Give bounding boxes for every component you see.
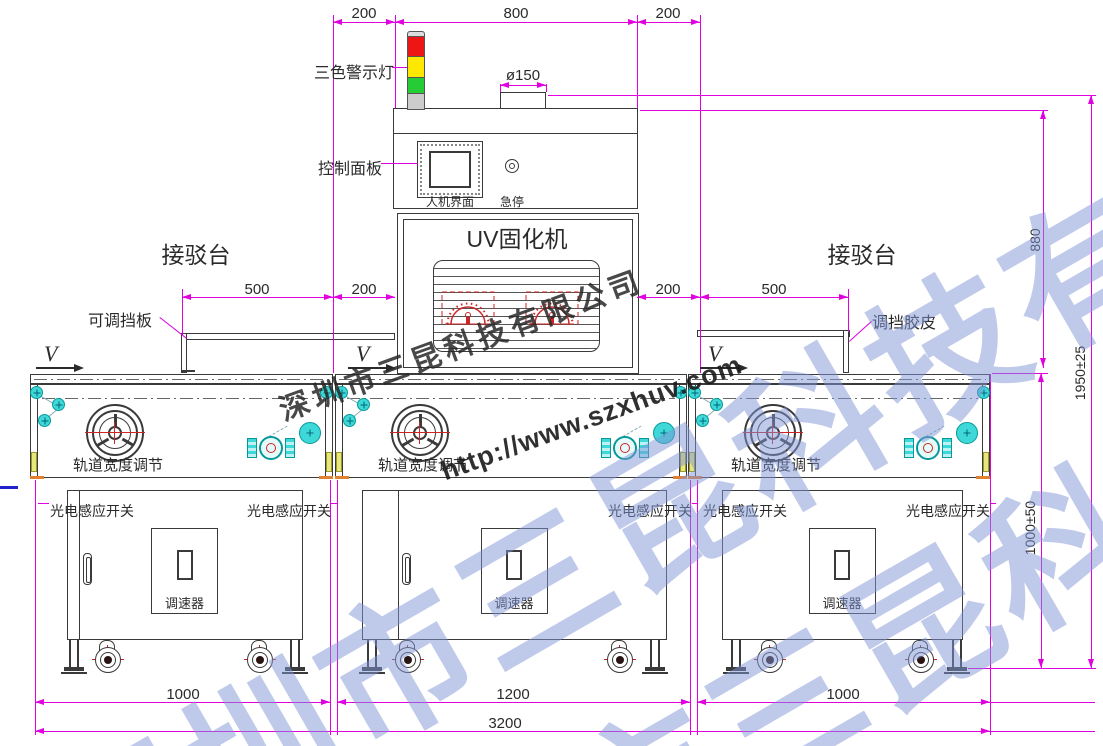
- direction-label: V: [44, 341, 57, 367]
- ext-line: [395, 15, 396, 108]
- dim-top-center: 800: [503, 5, 528, 22]
- leader-line: [381, 163, 418, 164]
- ext-line: [640, 110, 1048, 111]
- estop-button-center: [509, 163, 515, 169]
- control-panel-label: 控制面板: [318, 155, 382, 179]
- dim-line: [990, 702, 1095, 703]
- baffle-plate-left: [185, 333, 395, 340]
- exhaust-duct: [500, 92, 546, 109]
- leader-line: [38, 503, 49, 504]
- pulley-icon: [52, 398, 65, 411]
- adjustable-baffle-label: 可调挡板: [88, 307, 152, 331]
- sensor-block-icon: [31, 452, 37, 472]
- dim-left-gap: 200: [351, 281, 376, 298]
- pulley-icon: [299, 422, 321, 444]
- dim-right-gap: 200: [655, 281, 680, 298]
- leveling-foot-icon: [61, 640, 87, 677]
- machine-roof: [393, 108, 638, 134]
- sensor-block-icon: [336, 452, 342, 472]
- speed-controller-panel: 调速器: [151, 528, 218, 614]
- ext-line: [35, 480, 36, 735]
- pulley-icon: [38, 414, 51, 427]
- sensor-block-icon: [326, 452, 332, 472]
- door-handle-icon: [83, 553, 92, 585]
- photo-sensor-label: 光电感应开关: [247, 501, 331, 521]
- dim-top-left: 200: [351, 5, 376, 22]
- speed-controller-knob: [177, 550, 193, 580]
- photo-sensor-label: 光电感应开关: [50, 501, 134, 521]
- estop-label: 急停: [500, 193, 524, 210]
- dim-duct: ø150: [506, 67, 540, 84]
- dim-left-platform: 500: [244, 281, 269, 298]
- dim-right-platform: 500: [761, 281, 786, 298]
- ext-line: [700, 15, 701, 373]
- warning-light-label: 三色警示灯: [314, 59, 394, 83]
- motor-icon: [247, 434, 295, 462]
- track-width-label: 轨道宽度调节: [73, 454, 163, 475]
- caster-icon: [94, 643, 122, 675]
- baffle-lip-left: [181, 333, 187, 373]
- speed-controller-label: 调速器: [165, 593, 204, 612]
- pulley-icon: [30, 386, 43, 399]
- hmi-label: 人机界面: [426, 193, 474, 210]
- dim-line: [990, 731, 1095, 732]
- direction-arrow: [36, 367, 74, 369]
- ext-line: [548, 95, 1096, 96]
- machine-title: UV固化机: [467, 220, 568, 254]
- cad-drawing-canvas: 深圳市三昆科技有限公司 深圳市三昆科技有限公司 三色警示灯 ø150 人机界面 …: [0, 0, 1103, 746]
- platform-label-left: 接驳台: [162, 236, 231, 270]
- left-margin-mark: [0, 486, 18, 489]
- dim-top-right: 200: [655, 5, 680, 22]
- hmi-screen: [429, 151, 471, 188]
- pulley-icon: [343, 414, 356, 427]
